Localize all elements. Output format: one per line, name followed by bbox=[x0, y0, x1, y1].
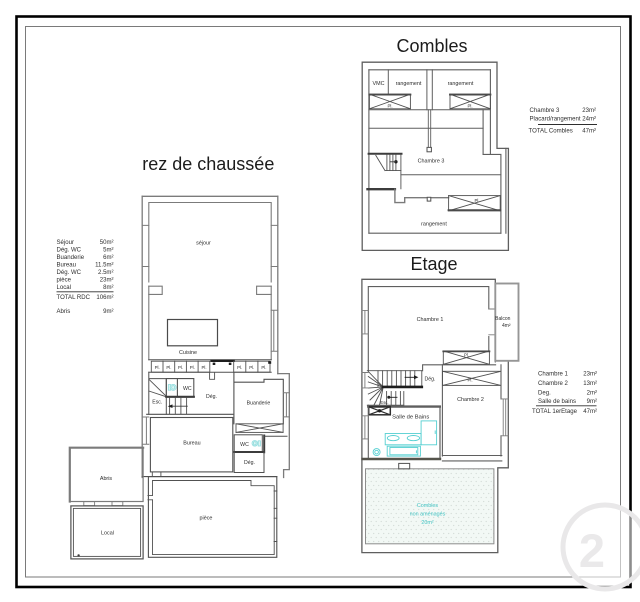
svg-text:WC: WC bbox=[240, 442, 249, 448]
svg-text:Dég. WC: Dég. WC bbox=[57, 270, 82, 276]
svg-text:Balcon: Balcon bbox=[495, 316, 511, 322]
svg-text:Chambre 2: Chambre 2 bbox=[538, 381, 569, 387]
svg-text:Bureau: Bureau bbox=[57, 263, 77, 269]
svg-text:pièce: pièce bbox=[200, 516, 213, 522]
svg-text:rangement: rangement bbox=[421, 221, 447, 227]
svg-text:rangement: rangement bbox=[448, 81, 474, 87]
svg-text:VMC: VMC bbox=[373, 81, 385, 87]
svg-text:Combles: Combles bbox=[396, 36, 467, 56]
svg-text:TOTAL 1erEtage: TOTAL 1erEtage bbox=[532, 409, 578, 415]
svg-text:Pl.: Pl. bbox=[178, 365, 183, 370]
svg-text:Chambre 1: Chambre 1 bbox=[538, 372, 569, 378]
svg-text:Pl.: Pl. bbox=[249, 365, 254, 370]
svg-text:23m²: 23m² bbox=[100, 278, 114, 284]
svg-text:séjour: séjour bbox=[196, 241, 211, 247]
svg-text:Placard/rangement: Placard/rangement bbox=[530, 117, 581, 123]
svg-text:9m²: 9m² bbox=[587, 399, 597, 405]
svg-text:Abris: Abris bbox=[100, 476, 113, 482]
svg-text:pièce: pièce bbox=[57, 278, 72, 284]
svg-text:2.5m²: 2.5m² bbox=[98, 270, 113, 276]
svg-text:5m²: 5m² bbox=[103, 248, 113, 254]
svg-text:Pl.: Pl. bbox=[467, 104, 472, 109]
svg-text:50m²: 50m² bbox=[100, 240, 114, 246]
svg-text:11.5m²: 11.5m² bbox=[95, 263, 113, 269]
svg-text:Pl.: Pl. bbox=[166, 365, 171, 370]
svg-text:Salle de Bains: Salle de Bains bbox=[392, 414, 429, 420]
svg-text:47m²: 47m² bbox=[583, 409, 597, 415]
svg-text:Dég.: Dég. bbox=[425, 377, 436, 383]
svg-text:23m²: 23m² bbox=[583, 372, 597, 378]
svg-text:non aménagés: non aménagés bbox=[410, 512, 446, 518]
svg-text:rez de chaussée: rez de chaussée bbox=[142, 154, 274, 174]
svg-text:Chambre 1: Chambre 1 bbox=[417, 317, 444, 323]
svg-text:Chambre 3: Chambre 3 bbox=[530, 108, 561, 114]
svg-text:Local: Local bbox=[57, 285, 71, 291]
svg-text:Local: Local bbox=[101, 531, 114, 537]
svg-text:Dég. WC: Dég. WC bbox=[57, 248, 82, 254]
svg-text:Pl.: Pl. bbox=[467, 378, 472, 383]
svg-text:Buanderie: Buanderie bbox=[57, 255, 85, 261]
svg-text:WC: WC bbox=[183, 386, 192, 392]
svg-text:20m²: 20m² bbox=[421, 520, 433, 526]
svg-text:6m²: 6m² bbox=[103, 255, 113, 261]
svg-text:Esc.: Esc. bbox=[380, 400, 388, 405]
svg-text:Salle de bains: Salle de bains bbox=[538, 399, 576, 405]
svg-text:4m²: 4m² bbox=[502, 323, 511, 329]
svg-text:rangement: rangement bbox=[396, 81, 422, 87]
svg-text:24m²: 24m² bbox=[582, 117, 596, 123]
svg-text:Séjour: Séjour bbox=[57, 240, 74, 246]
svg-text:8m²: 8m² bbox=[103, 285, 113, 291]
svg-text:TOTAL Combles: TOTAL Combles bbox=[529, 128, 573, 134]
svg-text:Dég.: Dég. bbox=[244, 460, 255, 466]
svg-text:TOTAL RDC: TOTAL RDC bbox=[57, 295, 91, 301]
svg-text:Pl.: Pl. bbox=[201, 365, 206, 370]
svg-text:Etage: Etage bbox=[410, 254, 457, 274]
svg-text:Pl.: Pl. bbox=[261, 365, 266, 370]
svg-text:13m²: 13m² bbox=[583, 381, 597, 387]
svg-text:Dég.: Dég. bbox=[206, 394, 217, 400]
svg-text:Pl.: Pl. bbox=[387, 104, 392, 109]
svg-text:Esc.: Esc. bbox=[152, 400, 162, 406]
svg-text:Buanderie: Buanderie bbox=[247, 401, 271, 407]
svg-text:Pl.: Pl. bbox=[237, 365, 242, 370]
svg-text:Chambre 2: Chambre 2 bbox=[457, 397, 484, 403]
svg-text:Chambre 3: Chambre 3 bbox=[418, 159, 445, 165]
svg-text:2m²: 2m² bbox=[587, 391, 597, 397]
svg-text:Combles: Combles bbox=[417, 503, 439, 509]
svg-text:Bureau: Bureau bbox=[183, 441, 200, 447]
svg-text:106m²: 106m² bbox=[96, 295, 113, 301]
svg-text:2: 2 bbox=[579, 524, 605, 577]
svg-text:9m²: 9m² bbox=[103, 309, 113, 315]
svg-text:47m²: 47m² bbox=[582, 128, 596, 134]
svg-text:Pl.: Pl. bbox=[464, 353, 469, 358]
svg-text:Deg.: Deg. bbox=[538, 391, 551, 397]
svg-text:Abris: Abris bbox=[57, 309, 71, 315]
svg-text:Pl.: Pl. bbox=[190, 365, 195, 370]
svg-text:Cuisine: Cuisine bbox=[179, 350, 197, 356]
svg-text:23m²: 23m² bbox=[582, 108, 596, 114]
svg-text:Pl.: Pl. bbox=[155, 365, 160, 370]
svg-text:Pl.: Pl. bbox=[474, 198, 479, 203]
